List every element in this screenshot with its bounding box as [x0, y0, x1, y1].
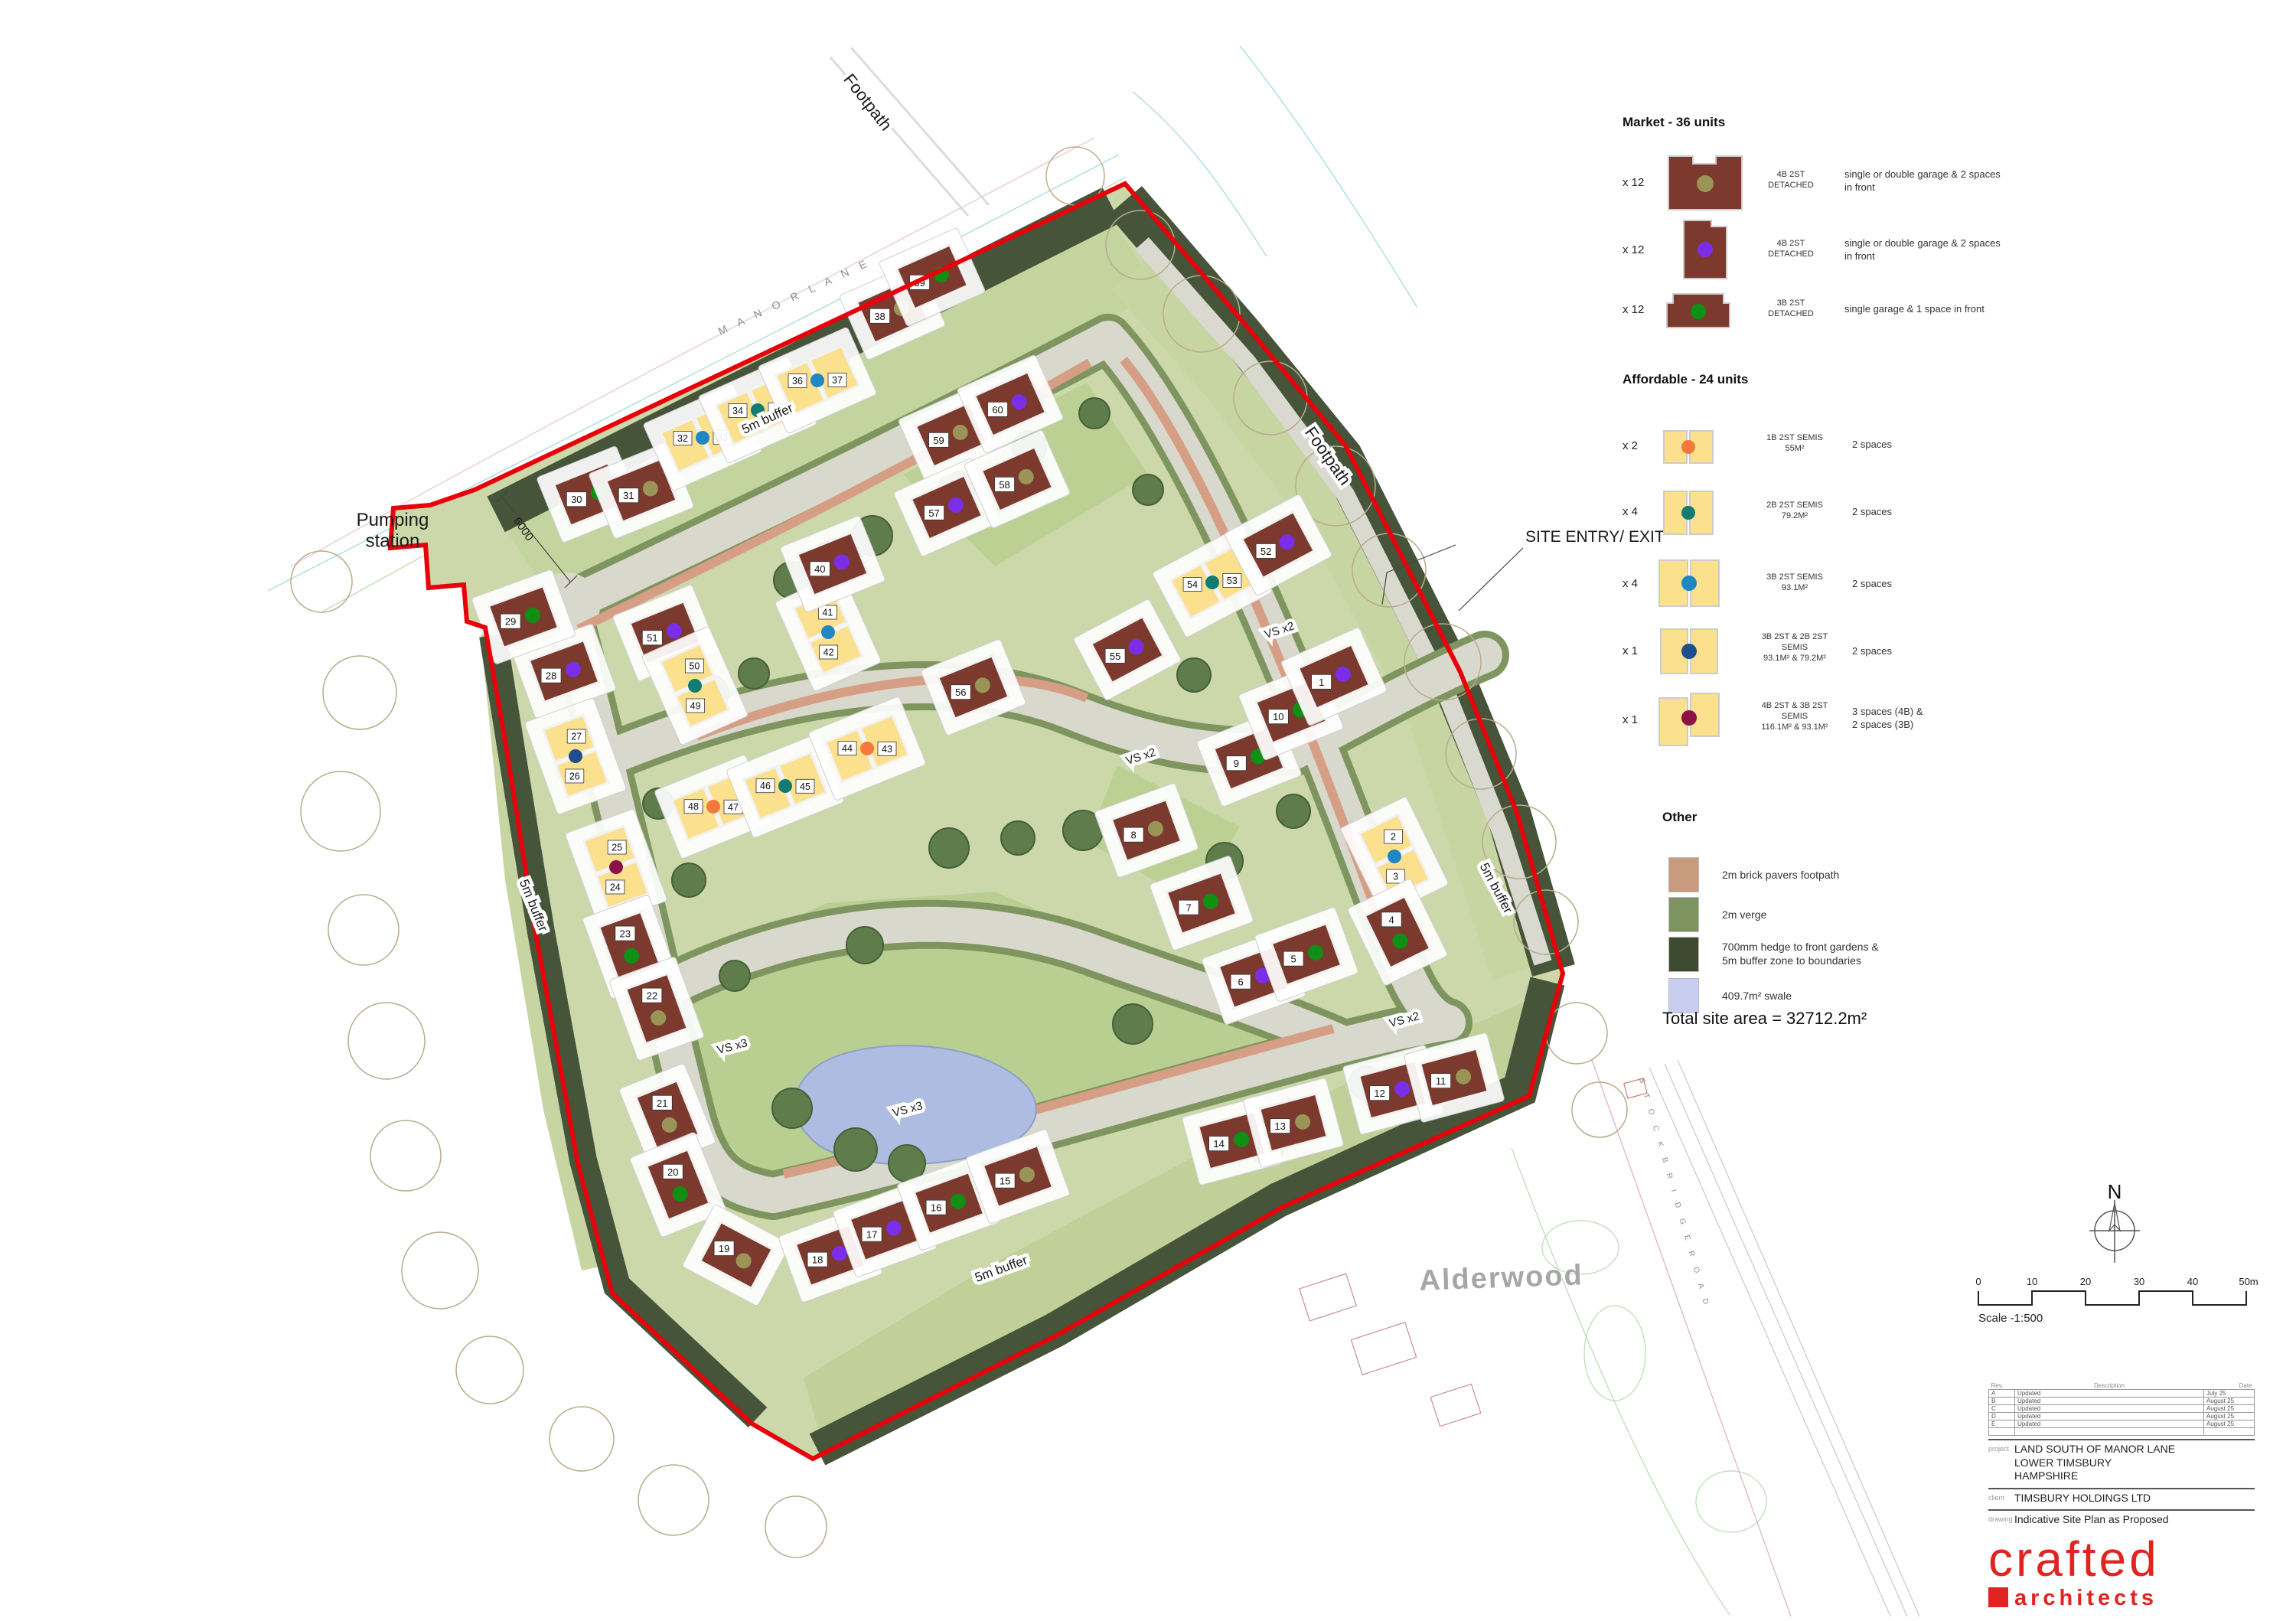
- svg-text:30: 30: [571, 494, 582, 505]
- svg-text:25: 25: [612, 843, 622, 853]
- svg-text:10: 10: [1273, 711, 1283, 722]
- revision-row: DUpdatedAugust 25: [1989, 1413, 2255, 1420]
- svg-text:57: 57: [928, 507, 939, 519]
- svg-text:42: 42: [823, 647, 834, 657]
- drawing-row: drawing Indicative Site Plan as Proposed: [1988, 1509, 2255, 1528]
- svg-text:12: 12: [1374, 1088, 1384, 1099]
- svg-text:8: 8: [1130, 830, 1136, 841]
- scale-tick-10: 10: [2027, 1276, 2037, 1287]
- svg-text:6: 6: [1238, 977, 1243, 988]
- legend-affordable-item-5: x 1 4B 2ST & 3B 2ST SEMIS 116.1M² & 93.1…: [1615, 692, 2043, 750]
- svg-text:51: 51: [647, 632, 657, 644]
- legend-other-label-1: 2m brick pavers footpath: [1722, 868, 1839, 882]
- svg-text:Footpath: Footpath: [840, 70, 895, 134]
- svg-text:28: 28: [546, 670, 556, 682]
- affordable-1b-icon: [1662, 429, 1714, 465]
- svg-text:36: 36: [792, 376, 803, 386]
- affordable-3b-2b-icon: [1659, 628, 1719, 675]
- logo-red-square: [1988, 1587, 2008, 1607]
- svg-text:18: 18: [812, 1254, 823, 1266]
- svg-text:60: 60: [992, 404, 1003, 416]
- svg-text:22: 22: [647, 990, 657, 1002]
- affordable-3b-icon: [1658, 559, 1720, 608]
- svg-text:49: 49: [690, 700, 701, 711]
- svg-text:N: N: [2108, 1180, 2122, 1203]
- legend-affordable-item-4: x 1 3B 2ST & 2B 2ST SEMIS 93.1M² & 79.2M…: [1615, 626, 2043, 680]
- swatch-hedge-buffer: [1668, 937, 1699, 972]
- svg-text:27: 27: [571, 732, 582, 742]
- title-block: Rev. Description Date AUpdatedJuly 25 BU…: [1988, 1382, 2255, 1621]
- svg-text:54: 54: [1187, 579, 1198, 590]
- swatch-verge: [1668, 897, 1699, 932]
- svg-text:4: 4: [1388, 914, 1394, 925]
- svg-text:1: 1: [1319, 677, 1324, 688]
- svg-text:31: 31: [623, 490, 634, 501]
- scale-bar: 0 10 20 30 40 50m Scale -1:500: [1959, 1267, 2281, 1328]
- legend-affordable-item-3: x 4 3B 2ST SEMIS 93.1M² 2 spaces: [1615, 557, 2043, 611]
- legend-other-title: Other: [1662, 810, 1697, 825]
- legend-other-label-4: 409.7m² swale: [1722, 989, 1792, 1003]
- drawing-sheet: 2829303132333435363738395960515049414240…: [0, 0, 2296, 1621]
- svg-text:13: 13: [1274, 1120, 1285, 1132]
- revision-table: Rev. Description Date AUpdatedJuly 25 BU…: [1988, 1382, 2255, 1436]
- market-4b-purple-icon: [1682, 219, 1728, 280]
- svg-text:47: 47: [728, 802, 739, 813]
- svg-text:53: 53: [1227, 576, 1238, 586]
- svg-text:45: 45: [800, 781, 810, 792]
- total-site-area: Total site area = 32712.2m²: [1662, 1009, 1867, 1029]
- svg-text:7: 7: [1186, 902, 1191, 914]
- svg-text:14: 14: [1213, 1138, 1224, 1150]
- svg-text:52: 52: [1261, 546, 1271, 557]
- svg-text:Pumping: Pumping: [357, 510, 429, 530]
- client-name: TIMSBURY HOLDINGS LTD: [2014, 1492, 2151, 1505]
- scale-tick-0: 0: [1975, 1276, 1981, 1287]
- svg-text:26: 26: [569, 771, 580, 781]
- legend-affordable-item-2: x 4 2B 2ST SEMIS 79.2M² 2 spaces: [1615, 488, 2043, 539]
- revision-row: BUpdatedAugust 25: [1989, 1398, 2255, 1405]
- legend-affordable-title: Affordable - 24 units: [1623, 372, 1748, 387]
- legend-market-item-1: x 12 4B 2ST DETACHED single or double ga…: [1615, 150, 2043, 219]
- svg-text:46: 46: [760, 781, 771, 791]
- client-row: client TIMSBURY HOLDINGS LTD: [1988, 1488, 2255, 1507]
- revision-row: EUpdatedAugust 25: [1989, 1420, 2255, 1428]
- revision-row-empty: [1989, 1428, 2255, 1436]
- scale-tick-20: 20: [2080, 1276, 2091, 1287]
- map-label: Footpath: [840, 70, 895, 134]
- revision-row: AUpdatedJuly 25: [1989, 1390, 2255, 1398]
- svg-text:17: 17: [866, 1229, 877, 1241]
- svg-text:11: 11: [1436, 1075, 1446, 1087]
- legend-affordable-item-1: x 2 1B 2ST SEMIS 55M² 2 spaces: [1615, 426, 2043, 471]
- svg-text:38: 38: [874, 311, 885, 322]
- svg-text:41: 41: [822, 608, 833, 618]
- legend-market-title: Market - 36 units: [1623, 115, 1725, 130]
- svg-text:19: 19: [719, 1243, 729, 1254]
- project-row: project LAND SOUTH OF MANOR LANE LOWER T…: [1988, 1439, 2255, 1485]
- map-label: Alderwood: [1419, 1259, 1584, 1296]
- svg-text:29: 29: [505, 616, 516, 628]
- crafted-logo: crafted architects: [1988, 1538, 2160, 1612]
- svg-text:station: station: [366, 530, 420, 551]
- svg-text:56: 56: [955, 687, 966, 698]
- svg-text:21: 21: [657, 1098, 667, 1109]
- svg-text:23: 23: [620, 928, 631, 940]
- swatch-brick-pavers: [1668, 857, 1699, 892]
- affordable-2b-icon: [1662, 490, 1714, 536]
- svg-text:3: 3: [1393, 871, 1398, 882]
- svg-text:9: 9: [1234, 758, 1239, 769]
- revision-row: CUpdatedAugust 25: [1989, 1405, 2255, 1413]
- legend-market-item-3: x 12 3B 2ST DETACHED single garage & 1 s…: [1615, 289, 2043, 335]
- svg-text:58: 58: [999, 479, 1009, 491]
- svg-text:15: 15: [1000, 1176, 1010, 1187]
- svg-text:59: 59: [933, 435, 944, 446]
- market-4b-olive-icon: [1667, 150, 1743, 211]
- svg-text:34: 34: [732, 406, 743, 416]
- svg-text:32: 32: [677, 433, 688, 444]
- legend-other-label-2: 2m verge: [1722, 908, 1766, 921]
- legend-other-label-3: 700mm hedge to front gardens & 5m buffer…: [1722, 940, 1879, 967]
- svg-text:37: 37: [832, 375, 843, 386]
- svg-text:16: 16: [931, 1202, 941, 1214]
- svg-text:20: 20: [667, 1166, 678, 1178]
- svg-text:5: 5: [1290, 954, 1296, 965]
- svg-text:43: 43: [882, 744, 892, 755]
- svg-text:Alderwood: Alderwood: [1419, 1259, 1584, 1296]
- svg-text:44: 44: [842, 743, 853, 754]
- svg-text:55: 55: [1110, 651, 1120, 662]
- svg-text:40: 40: [814, 563, 825, 575]
- map-label: Pumpingstation: [357, 510, 429, 552]
- scale-tick-50: 50m: [2239, 1276, 2258, 1287]
- svg-text:24: 24: [610, 882, 621, 892]
- scale-tick-40: 40: [2187, 1276, 2198, 1287]
- riba-logo: RIBA: [2174, 1619, 2249, 1621]
- scale-caption: Scale -1:500: [1978, 1312, 2043, 1325]
- svg-text:50: 50: [689, 661, 700, 672]
- svg-text:48: 48: [688, 801, 699, 812]
- svg-text:2: 2: [1391, 832, 1396, 843]
- affordable-4b-3b-icon: [1658, 692, 1720, 747]
- north-arrow: N: [2066, 1177, 2166, 1277]
- drawing-title: Indicative Site Plan as Proposed: [2014, 1513, 2169, 1527]
- project-name: LAND SOUTH OF MANOR LANE LOWER TIMSBURY …: [2014, 1443, 2175, 1483]
- market-3b-green-icon: [1665, 292, 1731, 329]
- legend-market-item-2: x 12 4B 2ST DETACHED single or double ga…: [1615, 219, 2043, 288]
- scale-tick-30: 30: [2134, 1276, 2144, 1287]
